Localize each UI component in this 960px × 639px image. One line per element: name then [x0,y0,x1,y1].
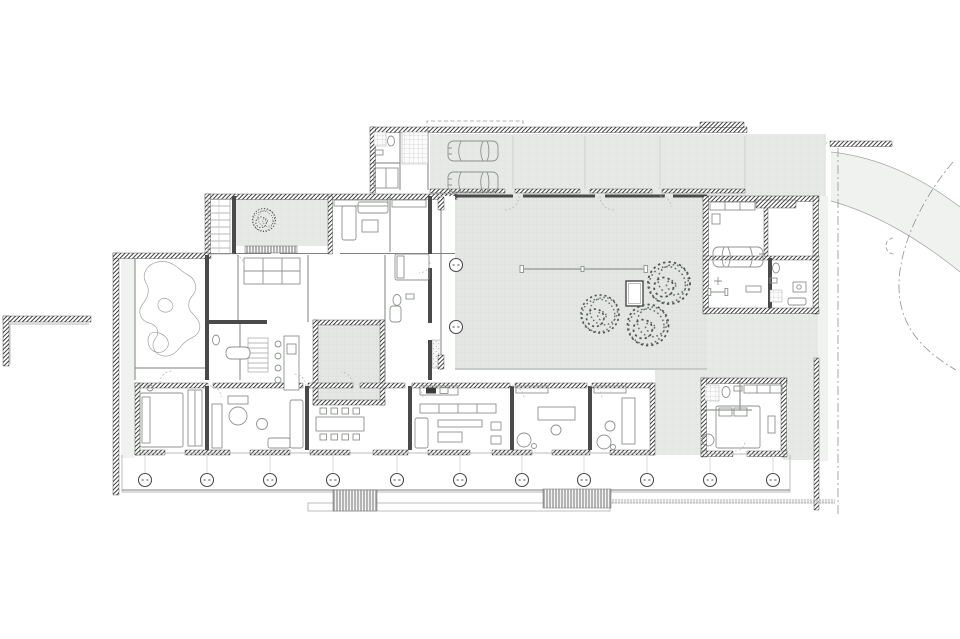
bathroom-mid [390,294,414,322]
study-one [516,386,575,449]
kitchen-island [275,336,299,390]
site-road [831,152,960,272]
paved-areas [121,134,828,461]
site-wall-segment [830,141,892,147]
interior-stair-north [208,199,230,254]
north-courtyard-paving [236,199,330,246]
veranda-columns [139,474,780,487]
main-courtyard-paving [455,196,707,370]
driveway-court [430,134,826,196]
master-suite [702,385,782,448]
planter-box [626,281,643,306]
closet-row [392,200,426,207]
courtyard-column [450,321,463,334]
bedroom-mid [395,254,429,280]
floor-plan-canvas [0,0,960,639]
inner-courtyard-paving [318,325,380,400]
column-stems [145,456,773,473]
gym-room [708,277,806,305]
family-room [212,396,303,448]
interior-stair-center [248,338,268,372]
bathtub-room [213,335,251,359]
living-room [415,404,501,448]
pond-garden [140,261,200,356]
veranda [122,455,835,511]
courtyard-column [450,259,463,272]
courtyard-steps [245,246,297,253]
service-bathroom [374,132,428,188]
study-two [594,386,635,450]
bedroom-west [140,385,202,447]
lounge-sofas [334,200,388,240]
floor-plan-drawing [0,0,960,639]
dining-room [316,408,364,440]
